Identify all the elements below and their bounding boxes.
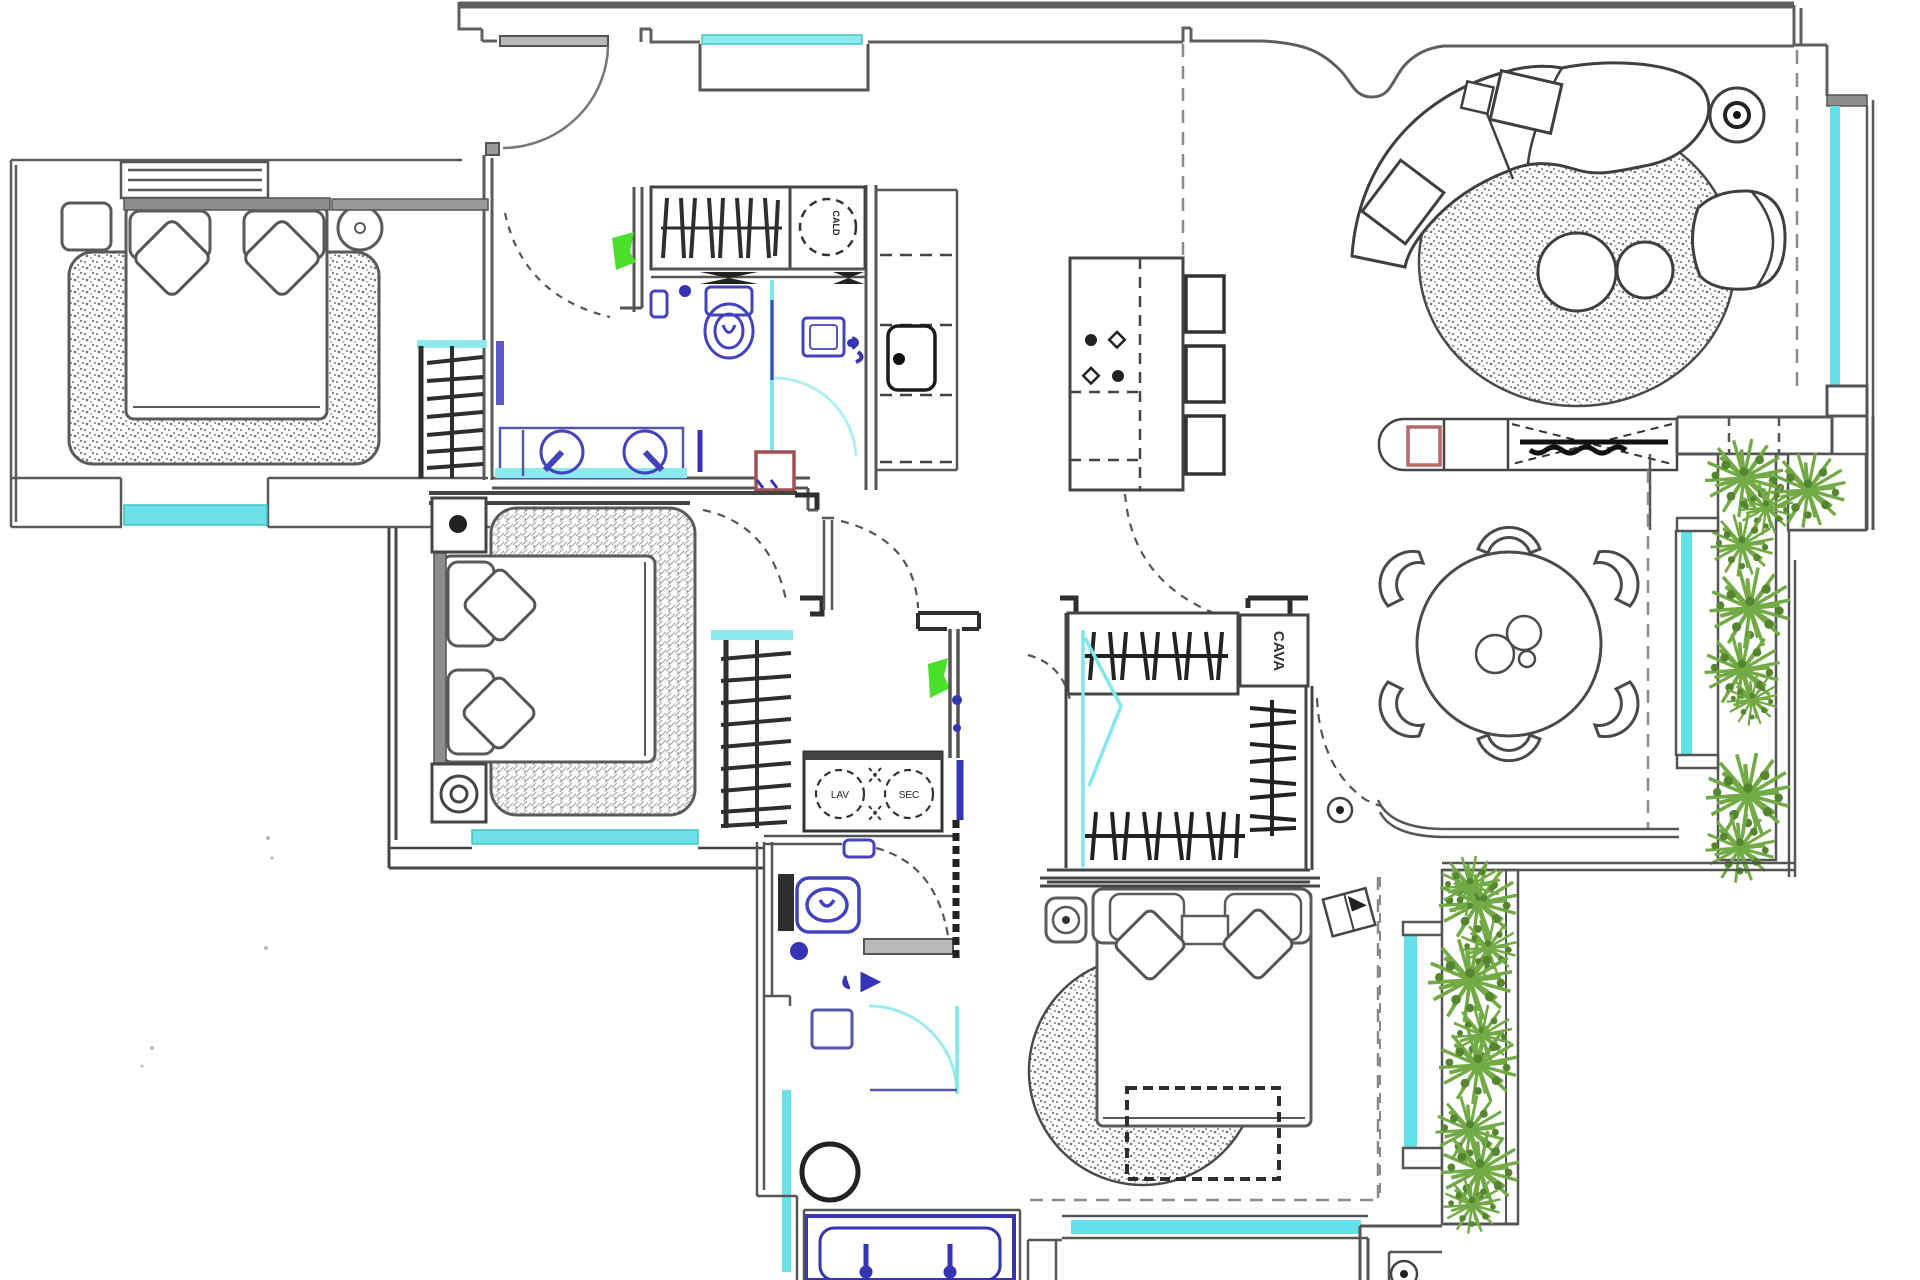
svg-text:CALD: CALD <box>831 211 841 236</box>
svg-text:CAVA: CAVA <box>1270 631 1287 671</box>
svg-text:SEC: SEC <box>899 790 920 801</box>
svg-text:LAV: LAV <box>831 790 849 801</box>
